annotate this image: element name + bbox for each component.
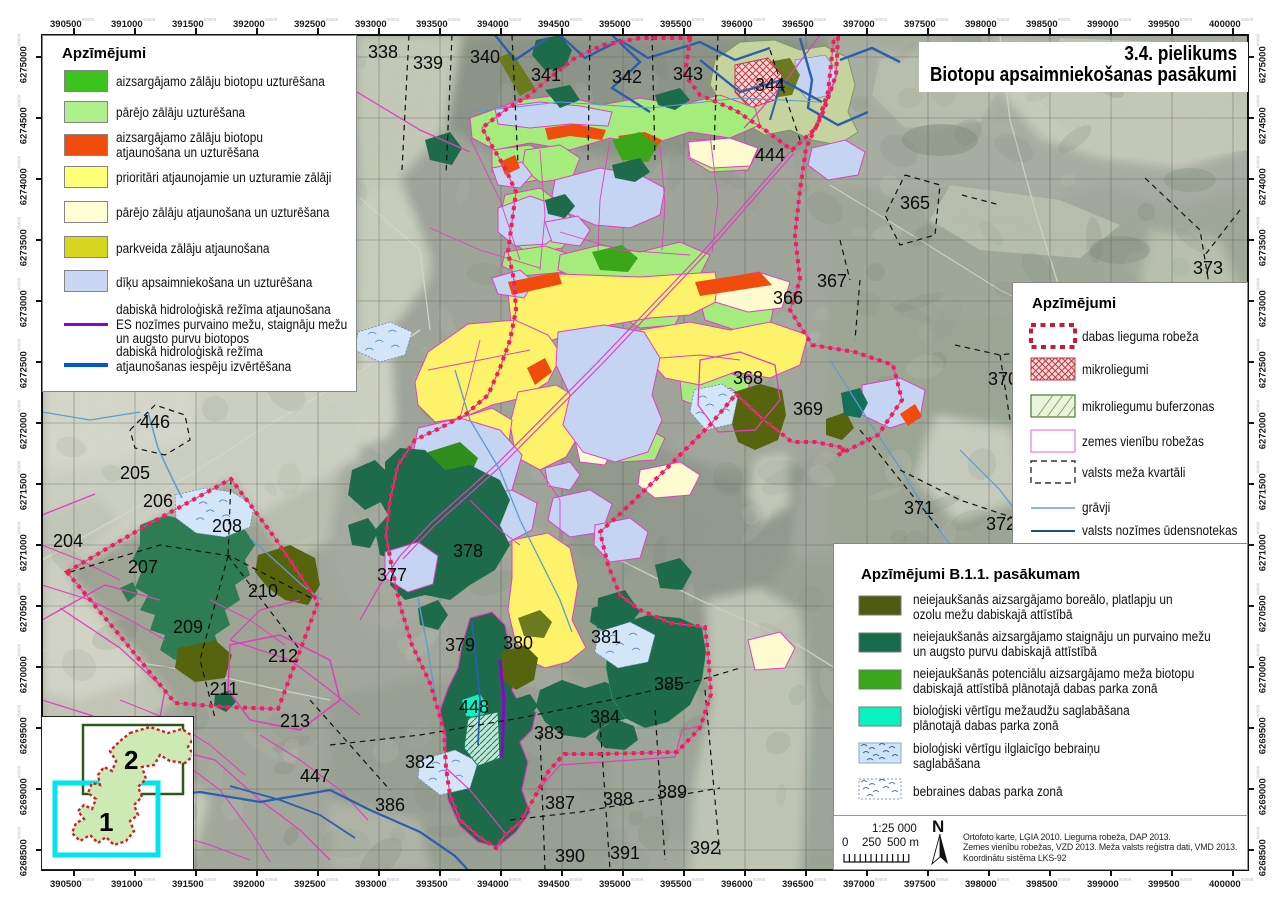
svg-text:377: 377 <box>377 565 407 585</box>
svg-text:387: 387 <box>545 793 575 813</box>
svg-text:213: 213 <box>280 711 310 731</box>
svg-text:382: 382 <box>405 752 435 772</box>
svg-text:204: 204 <box>53 531 83 551</box>
svg-text:209: 209 <box>173 617 203 637</box>
svg-text:342: 342 <box>612 67 642 87</box>
svg-text:371: 371 <box>904 498 934 518</box>
svg-text:341: 341 <box>531 65 561 85</box>
svg-text:390: 390 <box>555 846 585 866</box>
svg-text:206: 206 <box>143 491 173 511</box>
svg-text:210: 210 <box>248 581 278 601</box>
svg-text:378: 378 <box>453 541 483 561</box>
svg-text:373: 373 <box>1193 258 1223 278</box>
svg-text:369: 369 <box>793 399 823 419</box>
svg-text:380: 380 <box>503 633 533 653</box>
svg-text:338: 338 <box>368 42 398 62</box>
svg-text:383: 383 <box>534 723 564 743</box>
svg-text:365: 365 <box>900 193 930 213</box>
svg-text:366: 366 <box>773 288 803 308</box>
svg-text:368: 368 <box>733 368 763 388</box>
svg-text:392: 392 <box>690 838 720 858</box>
svg-text:385: 385 <box>654 674 684 694</box>
svg-text:367: 367 <box>817 271 847 291</box>
svg-text:447: 447 <box>300 766 330 786</box>
svg-text:444: 444 <box>755 145 785 165</box>
svg-text:384: 384 <box>590 707 620 727</box>
svg-text:448: 448 <box>459 697 489 717</box>
svg-text:340: 340 <box>470 47 500 67</box>
svg-text:N: N <box>932 817 944 836</box>
svg-text:388: 388 <box>603 789 633 809</box>
svg-text:379: 379 <box>445 635 475 655</box>
svg-text:211: 211 <box>210 679 239 699</box>
svg-text:339: 339 <box>413 53 443 73</box>
svg-text:208: 208 <box>212 516 242 536</box>
svg-text:205: 205 <box>120 463 150 483</box>
svg-text:343: 343 <box>673 64 703 84</box>
svg-text:446: 446 <box>140 412 170 432</box>
svg-text:207: 207 <box>128 557 158 577</box>
svg-text:381: 381 <box>591 627 621 647</box>
svg-text:391: 391 <box>610 843 640 863</box>
svg-text:389: 389 <box>657 782 687 802</box>
svg-text:344: 344 <box>755 75 785 95</box>
svg-text:386: 386 <box>375 795 405 815</box>
svg-text:212: 212 <box>268 646 298 666</box>
